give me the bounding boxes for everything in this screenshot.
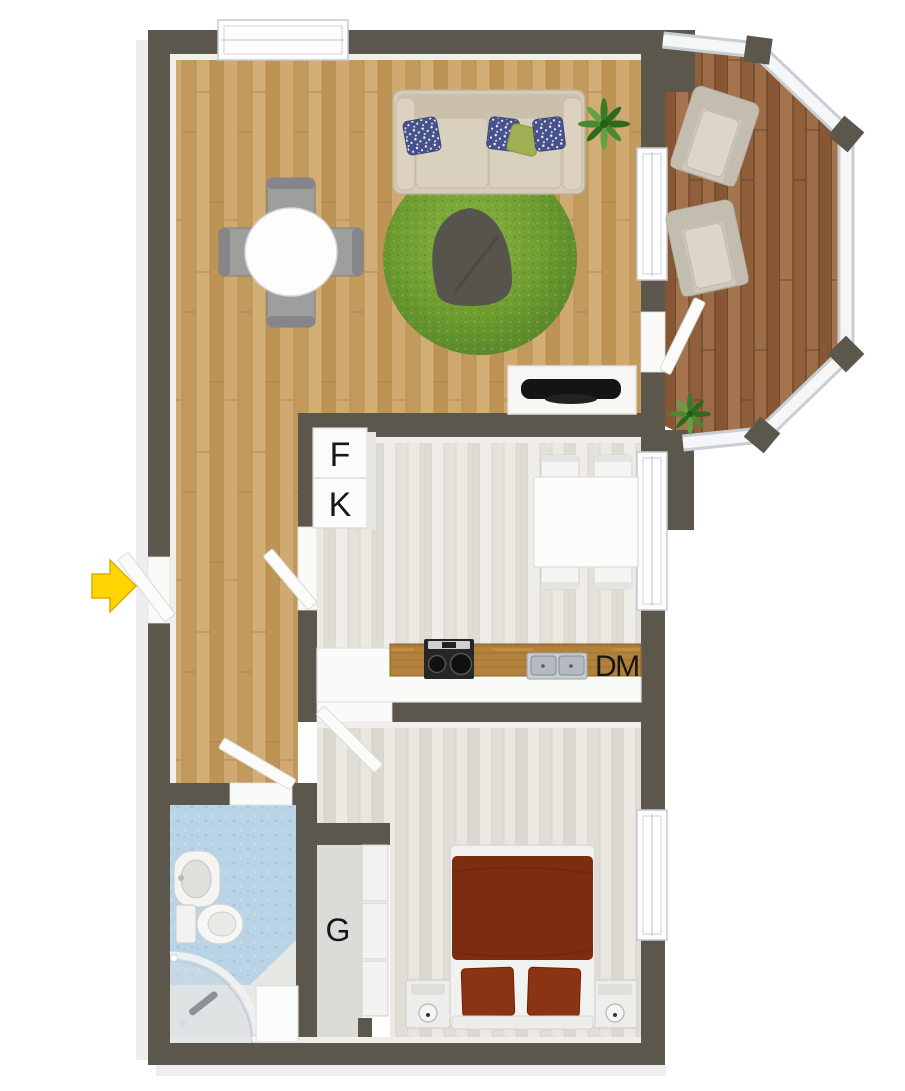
- bathroom-cabinet: [256, 986, 298, 1042]
- kitchen-chair-3: [541, 565, 579, 589]
- wall-right-6: [641, 722, 665, 810]
- label-freezer: F: [330, 436, 351, 474]
- window-kitchen-east: [637, 452, 667, 610]
- kitchen-chair-2: [594, 455, 632, 479]
- wall-bath-top-a: [170, 783, 230, 805]
- wall-closet-top: [317, 823, 390, 845]
- bed-pillow-right: [527, 967, 581, 1017]
- wall-kitchen-bedroom-a: [298, 700, 317, 722]
- window-bedroom-east: [637, 810, 667, 940]
- stove: [424, 639, 474, 679]
- kitchen-table: [534, 477, 638, 567]
- sink: [527, 653, 587, 679]
- kitchen-chair-1: [541, 455, 579, 479]
- bed-pillow-left: [461, 967, 515, 1017]
- bathroom-door-threshold: [230, 783, 292, 805]
- window-top: [218, 20, 348, 60]
- bathroom-sink: [174, 851, 220, 907]
- wall-right-5: [641, 610, 665, 702]
- window-living-east: [637, 148, 667, 280]
- sofa-pillow-pattern-3: [532, 116, 566, 151]
- fridge-freezer-cabinet: F K: [313, 428, 376, 530]
- wall-kitchen-bedroom-b: [392, 700, 665, 722]
- label-dishwasher: DM: [595, 650, 639, 683]
- kitchen-chair-4: [594, 565, 632, 589]
- nightstand-left: [406, 980, 450, 1028]
- balcony-door-threshold: [641, 312, 665, 372]
- sofa-pillow-pattern-1: [402, 116, 441, 155]
- label-fridge: K: [329, 486, 352, 524]
- shower-drain: [178, 1019, 186, 1027]
- wall-bottom: [148, 1043, 665, 1065]
- wall-right-3: [641, 372, 665, 417]
- wall-right-7: [641, 940, 665, 1043]
- dining-table: [245, 208, 337, 296]
- wall-top-b: [345, 30, 663, 54]
- label-wardrobe: G: [326, 912, 351, 948]
- closet-door-panel-2: [362, 903, 388, 959]
- tv-unit: [508, 366, 636, 414]
- floor-plan-page: F K: [0, 0, 905, 1091]
- kitchen-counter: DM: [317, 639, 641, 702]
- wall-bath-east: [296, 783, 317, 1043]
- face-bedroom-top: [317, 722, 641, 728]
- nightstand-right: [593, 980, 637, 1028]
- wall-right-2: [641, 280, 665, 312]
- shadow-bottom: [156, 1065, 666, 1076]
- floor-plan-svg: F K: [0, 0, 905, 1091]
- closet-door-panel-1: [362, 845, 388, 901]
- sofa: [393, 90, 585, 194]
- wall-left: [148, 30, 170, 1065]
- closet-door-panel-3: [362, 961, 388, 1016]
- double-bed: [450, 845, 595, 1029]
- wall-top-a: [148, 30, 222, 54]
- shadow-left: [136, 40, 148, 1060]
- tv-stand: [545, 394, 597, 404]
- wall-kitchen-west-lower: [298, 610, 317, 702]
- face-left: [170, 54, 176, 783]
- post-1: [743, 35, 772, 64]
- bed-footboard: [452, 1016, 593, 1029]
- toilet: [176, 904, 243, 944]
